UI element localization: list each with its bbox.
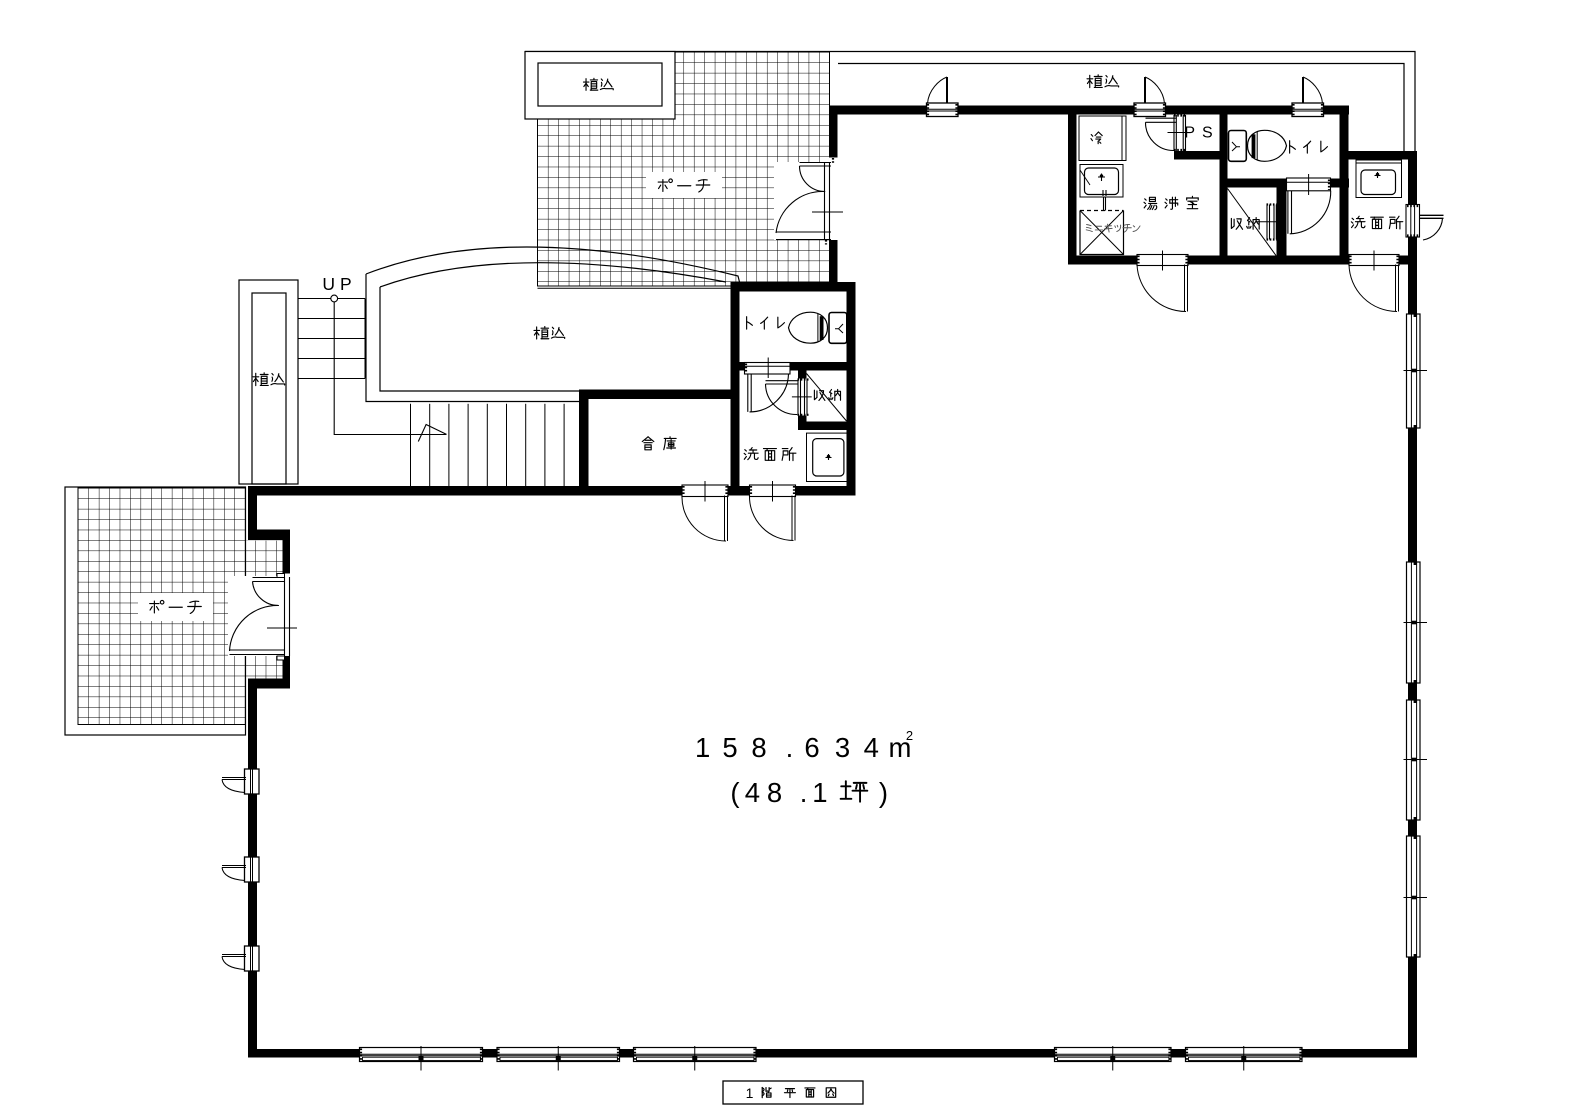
svg-text:4: 4 bbox=[745, 777, 760, 808]
svg-text:(: ( bbox=[730, 777, 739, 808]
svg-text:PS: PS bbox=[1184, 125, 1219, 142]
svg-text:.: . bbox=[800, 777, 808, 808]
svg-text:3: 3 bbox=[835, 732, 850, 763]
svg-text:.: . bbox=[786, 732, 794, 763]
svg-text:4: 4 bbox=[864, 732, 879, 763]
svg-text:UP: UP bbox=[322, 274, 356, 294]
svg-text:8: 8 bbox=[751, 732, 766, 763]
svg-text:6: 6 bbox=[804, 732, 819, 763]
svg-text:2: 2 bbox=[906, 728, 913, 743]
svg-text:5: 5 bbox=[722, 732, 737, 763]
svg-text:): ) bbox=[879, 777, 888, 808]
svg-text:1: 1 bbox=[812, 777, 827, 808]
svg-text:8: 8 bbox=[767, 777, 782, 808]
svg-text:1: 1 bbox=[746, 1085, 754, 1101]
svg-text:1: 1 bbox=[695, 732, 710, 763]
